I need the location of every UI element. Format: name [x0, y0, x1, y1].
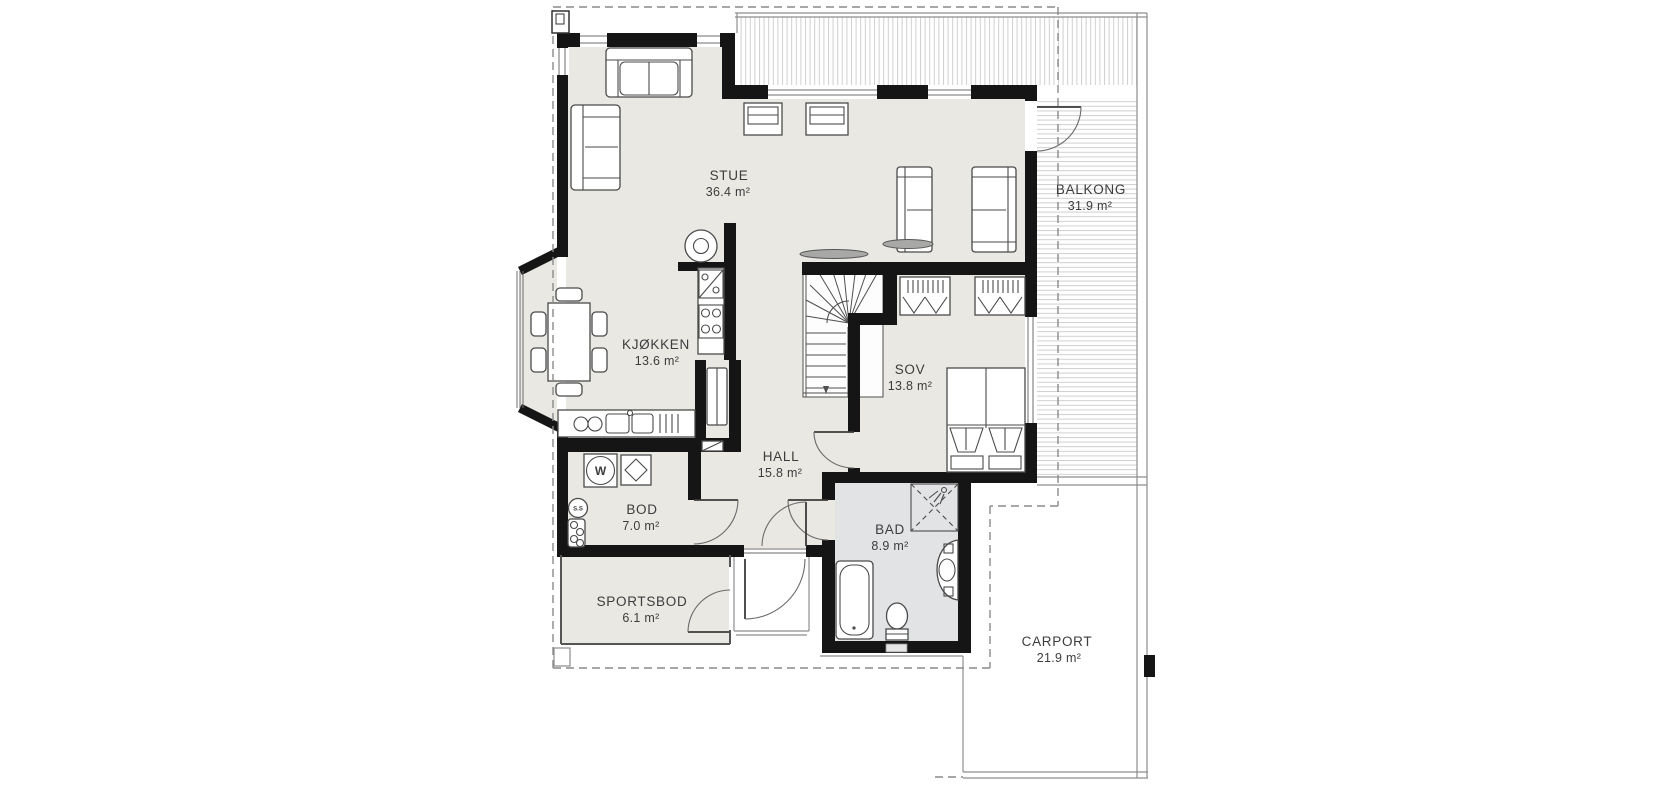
- room-area-sov: 13.8 m²: [888, 379, 932, 393]
- room-area-bod: 7.0 m²: [622, 519, 659, 533]
- carport-post: [1144, 655, 1155, 677]
- washing-machine-label: W: [595, 464, 607, 478]
- balcony-door-opening: [1025, 101, 1037, 151]
- wardrobe-icon: [975, 277, 1025, 315]
- window-icon: [580, 33, 607, 47]
- plumbing-stack-icon: [568, 519, 585, 547]
- bathtub-icon: [836, 561, 873, 639]
- heat-pump-icon: [621, 455, 651, 485]
- room-label-stue: STUE: [710, 168, 749, 183]
- sideboard-icon: [883, 240, 933, 249]
- loveseat-icon: [571, 105, 620, 190]
- shaft-cabinet-icon: [707, 368, 727, 425]
- room-label-bad: BAD: [875, 522, 905, 537]
- deck-boards-right: [1037, 99, 1137, 477]
- wardrobe-icon: [900, 277, 950, 315]
- chimney-icon: [552, 11, 569, 33]
- window-icon: [1025, 317, 1037, 423]
- room-area-bad: 8.9 m²: [871, 539, 908, 553]
- fireplace-icon: [685, 230, 717, 262]
- floor-plan-page: STUE 36.4 m² KJØKKEN 13.6 m² SOV 13.8 m²…: [0, 0, 1670, 800]
- window-icon: [768, 85, 877, 99]
- room-area-balkong: 31.9 m²: [1068, 199, 1112, 213]
- carport-outline: [963, 655, 1155, 778]
- room-label-sportsbod: SPORTSBOD: [597, 594, 688, 609]
- casement-window-icon: [744, 103, 782, 135]
- kitchen-counter-icon: [558, 410, 695, 437]
- room-label-sov: SOV: [895, 362, 926, 377]
- water-heater-label: S.S: [573, 507, 583, 513]
- wall-hatch-panel: [702, 441, 723, 451]
- floor-plan-drawing: STUE 36.4 m² KJØKKEN 13.6 m² SOV 13.8 m²…: [0, 0, 1670, 800]
- deck-boards-top: [737, 17, 1137, 85]
- window-icon: [697, 33, 720, 47]
- overhang-post: [554, 648, 570, 666]
- window-icon: [555, 48, 569, 75]
- sideboard-icon: [800, 250, 868, 259]
- room-area-hall: 15.8 m²: [758, 466, 802, 480]
- room-label-kjokken: KJØKKEN: [622, 337, 690, 352]
- room-area-carport: 21.9 m²: [1037, 651, 1081, 665]
- toilet-icon: [886, 603, 908, 640]
- stairs-icon: [803, 265, 883, 397]
- armchair-icon: [972, 167, 1016, 252]
- double-bed-icon: [947, 368, 1025, 472]
- room-label-hall: HALL: [763, 449, 800, 464]
- room-area-stue: 36.4 m²: [706, 185, 750, 199]
- room-area-kjokken: 13.6 m²: [635, 354, 679, 368]
- casement-window-icon: [806, 103, 848, 135]
- kitchen-appliance-column: [698, 268, 724, 354]
- threshold: [886, 644, 907, 652]
- sofa-icon: [606, 48, 692, 97]
- porch-door-swing: [745, 559, 805, 619]
- room-area-sportsbod: 6.1 m²: [622, 611, 659, 625]
- room-label-balkong: BALKONG: [1056, 182, 1126, 197]
- room-label-carport: CARPORT: [1022, 634, 1093, 649]
- room-label-bod: BOD: [626, 502, 657, 517]
- window-icon: [928, 85, 971, 99]
